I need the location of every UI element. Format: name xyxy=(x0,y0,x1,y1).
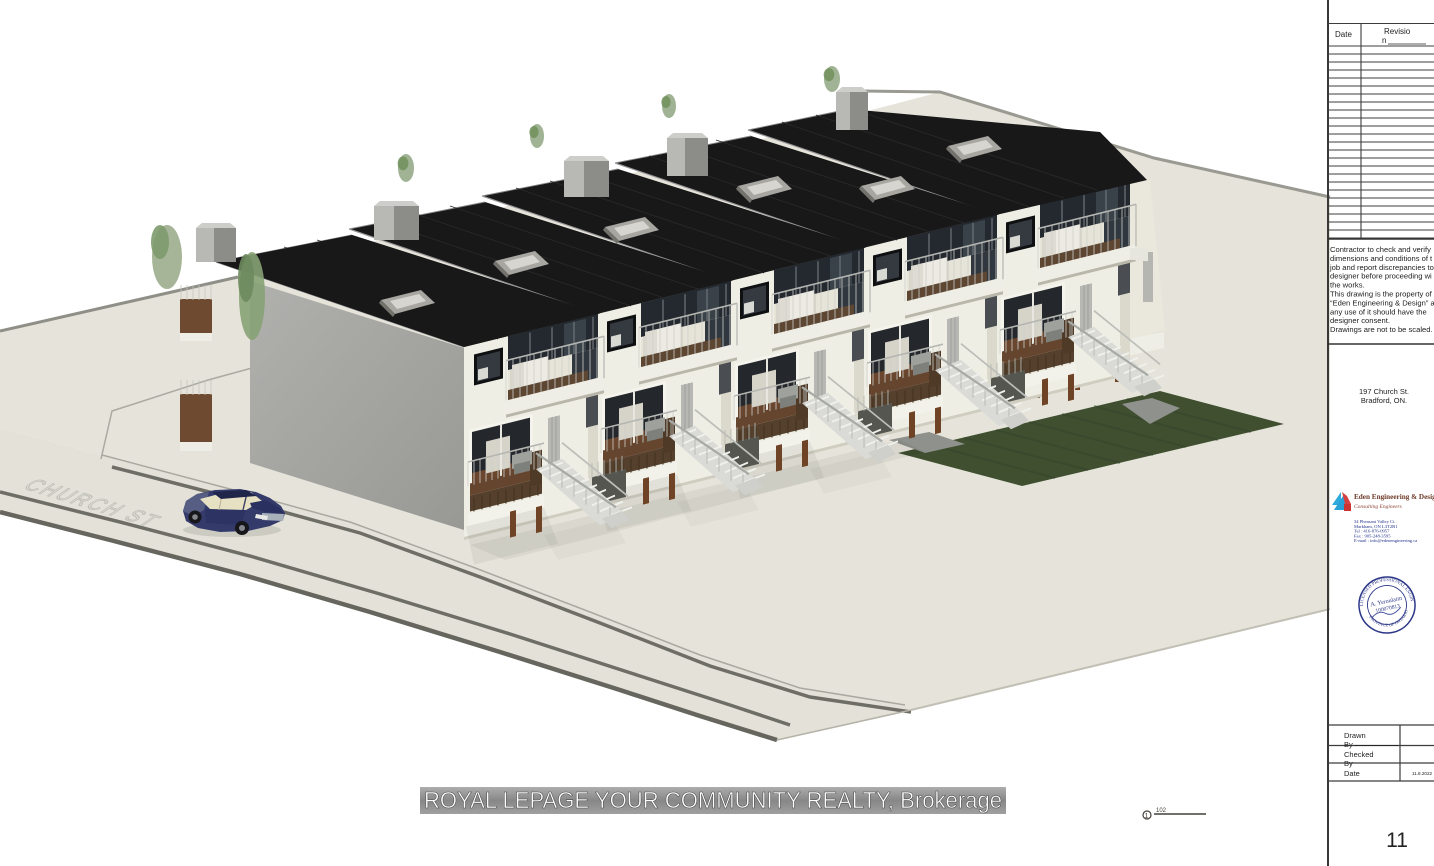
svg-text:Drawings are not to be scaled.: Drawings are not to be scaled. xyxy=(1330,325,1433,334)
svg-text:Revisio: Revisio xyxy=(1384,27,1411,36)
svg-text:102: 102 xyxy=(1156,808,1167,814)
svg-text:11: 11 xyxy=(1386,829,1408,852)
svg-text:Contractor to check and verify: Contractor to check and verify xyxy=(1330,245,1431,254)
svg-text:By: By xyxy=(1344,759,1353,768)
svg-text:197 Church St.: 197 Church St. xyxy=(1359,387,1409,396)
svg-text:n: n xyxy=(1382,36,1386,45)
svg-text:Eden Engineering & Design: Eden Engineering & Design xyxy=(1354,493,1434,501)
svg-text:dimensions and conditions of t: dimensions and conditions of t xyxy=(1330,254,1433,263)
svg-text:This drawing is the property o: This drawing is the property of xyxy=(1330,290,1433,299)
svg-text:Drawn: Drawn xyxy=(1344,731,1366,740)
svg-text:1: 1 xyxy=(1145,813,1149,820)
svg-text:11.8.2022: 11.8.2022 xyxy=(1412,771,1433,776)
svg-text:“Eden Engineering & Design” a: “Eden Engineering & Design” a xyxy=(1330,298,1434,307)
svg-text:Date: Date xyxy=(1344,769,1360,778)
svg-text:By: By xyxy=(1344,740,1353,749)
svg-text:designer consent.: designer consent. xyxy=(1330,316,1390,325)
svg-text:designer before proceeding wi: designer before proceeding wi xyxy=(1330,272,1432,281)
svg-text:any use of it should have the: any use of it should have the xyxy=(1330,307,1427,316)
svg-text:E-mail : info@edenengineering.: E-mail : info@edenengineering.ca xyxy=(1354,538,1417,543)
svg-text:ROYAL LEPAGE YOUR COMMUNITY RE: ROYAL LEPAGE YOUR COMMUNITY REALTY, Brok… xyxy=(424,787,1002,813)
svg-text:Date: Date xyxy=(1335,30,1352,39)
svg-text:Checked: Checked xyxy=(1344,750,1374,759)
svg-text:job and report discrepancies t: job and report discrepancies to xyxy=(1329,263,1434,272)
svg-text:the works.: the works. xyxy=(1330,281,1365,290)
svg-text:Bradford, ON.: Bradford, ON. xyxy=(1361,396,1407,405)
svg-text:Consulting Engineers: Consulting Engineers xyxy=(1354,504,1402,510)
